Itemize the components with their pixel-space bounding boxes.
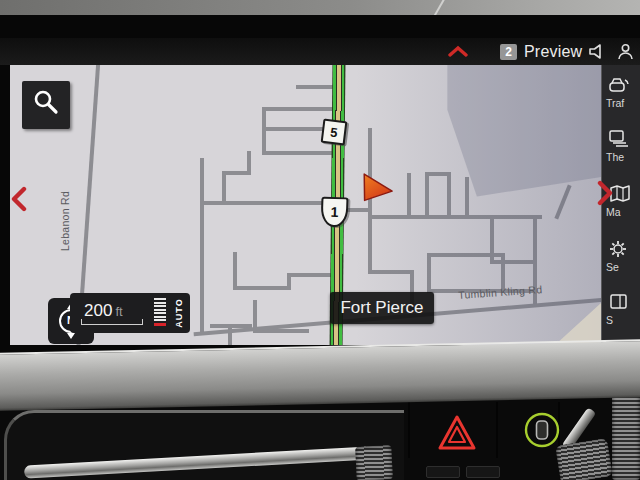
street-segment: [233, 252, 237, 290]
search-button[interactable]: [22, 81, 70, 129]
map-land-area: [555, 303, 601, 345]
street-segment: [345, 208, 370, 212]
street-segment: [222, 171, 226, 205]
auto-zoom-label: AUTO: [165, 299, 193, 327]
road-label-lebanon: Lebanon Rd: [59, 184, 71, 258]
street-segment: [368, 215, 542, 219]
street-segment: [447, 172, 451, 218]
street-segment: [368, 218, 372, 274]
status-bar: 2 Preview: [0, 38, 640, 65]
street-segment: [407, 173, 411, 218]
street-segment: [262, 107, 334, 111]
street-segment: [427, 253, 505, 257]
street-segment: [425, 172, 451, 176]
city-label-pill: Fort Pierce: [330, 292, 434, 324]
street-segment: [228, 324, 232, 345]
street-segment: [262, 107, 266, 155]
volume-icon: [588, 43, 606, 60]
right-vent-knob[interactable]: [555, 438, 612, 480]
road-label-tumblin-kling: Tumblin Kling Rd: [458, 283, 543, 301]
scroll-left-button[interactable]: [10, 186, 28, 216]
hazard-warning-icon: [436, 412, 478, 454]
volume-button[interactable]: [588, 38, 606, 65]
parking-assist-button[interactable]: [522, 410, 562, 450]
preview-label: Preview: [524, 38, 582, 65]
sidebar-item-split[interactable]: S: [602, 290, 640, 342]
street-segment: [222, 171, 251, 175]
panel-icon: [608, 292, 630, 312]
street-segment: [200, 158, 204, 332]
badge-count: 2: [500, 44, 517, 60]
layers-icon: [608, 129, 630, 149]
far-right-vent-knob[interactable]: [612, 392, 640, 480]
street-segment: [427, 253, 431, 293]
position-arrow-icon: [357, 172, 397, 211]
expand-menu-button[interactable]: [448, 38, 468, 65]
search-icon: [22, 81, 70, 129]
sidebar-item-traffic[interactable]: Traf: [602, 73, 640, 125]
driver-profile-button[interactable]: [616, 38, 635, 65]
dashboard-top-trim: [0, 0, 640, 15]
street-segment: [296, 85, 334, 89]
scroll-right-button[interactable]: [596, 180, 614, 210]
sidebar-item-theme[interactable]: The: [602, 127, 640, 179]
hazard-warning-button[interactable]: [436, 412, 478, 454]
street-segment: [490, 218, 494, 264]
scroll-left-icon: [10, 186, 28, 212]
infotainment-photo: 2 Preview: [0, 0, 640, 480]
street-segment: [490, 260, 537, 264]
notification-badge[interactable]: 2: [500, 38, 517, 65]
vent-knob[interactable]: [355, 445, 393, 480]
settings-icon: [608, 239, 630, 259]
map-scale-control[interactable]: 200ft AUTO: [70, 293, 190, 333]
street-segment: [262, 151, 334, 155]
city-label: Fort Pierce: [340, 298, 423, 318]
street-segment: [554, 185, 571, 220]
street-segment: [368, 270, 414, 274]
street-segment: [425, 172, 429, 218]
driver-profile-icon: [616, 43, 635, 60]
route-shield-us1: 1: [320, 197, 348, 228]
street-segment: [465, 177, 469, 218]
navigation-map[interactable]: Lebanon Rd Tumblin Kling Rd 5 1 Fort Pie…: [10, 65, 601, 345]
street-segment: [233, 286, 291, 290]
console-button[interactable]: [466, 466, 500, 478]
traffic-icon: [608, 75, 630, 95]
sidebar-item-settings[interactable]: Se: [602, 237, 640, 289]
scroll-right-icon: [596, 180, 614, 206]
route-shield-5: 5: [321, 119, 348, 146]
parking-assist-icon: [522, 410, 562, 450]
chevron-up-icon: [448, 45, 468, 58]
console-button[interactable]: [426, 466, 460, 478]
scale-value: 200ft: [84, 301, 123, 321]
center-console: [0, 398, 640, 480]
scale-bracket: [81, 319, 143, 325]
